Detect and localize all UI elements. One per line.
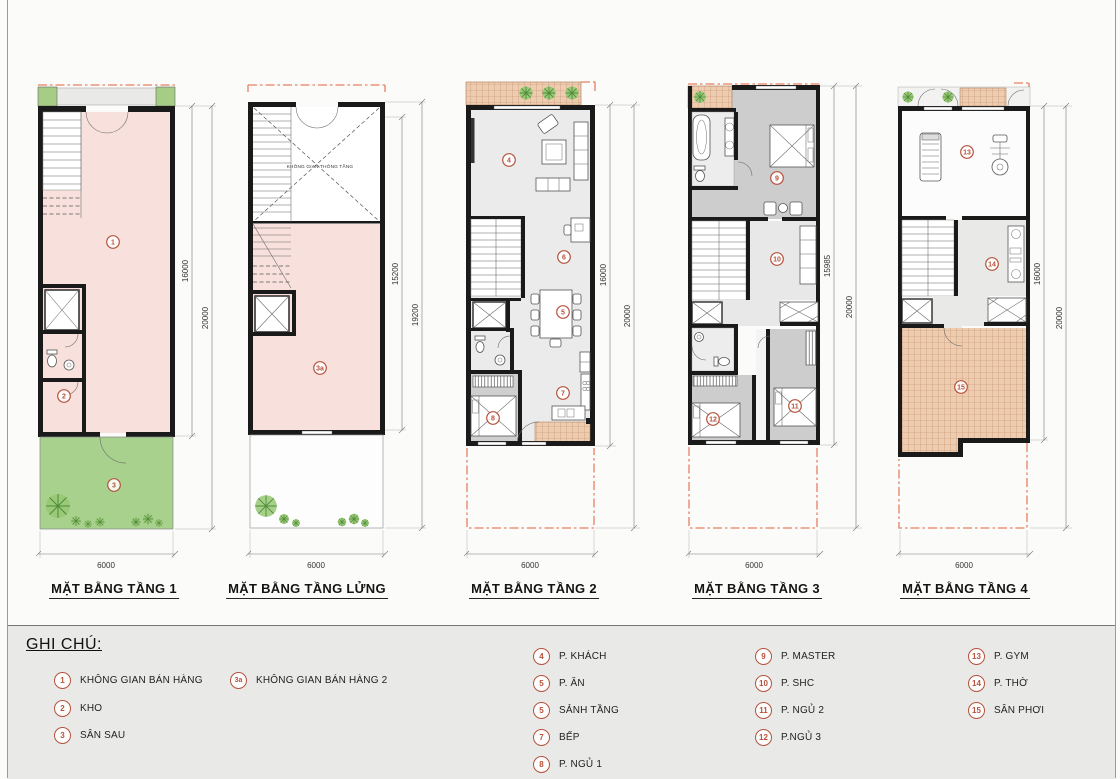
legend-label: P.NGỦ 3: [781, 732, 821, 743]
plan-title-tang-2: MẶT BẰNG TẦNG 2: [469, 581, 599, 599]
svg-text:3a: 3a: [316, 365, 324, 372]
legend-label: KHO: [80, 703, 102, 714]
elevator: [688, 300, 820, 328]
entry-porch: [43, 88, 169, 105]
dimension-label: 16000: [599, 263, 608, 286]
rear-open-area: [250, 435, 383, 528]
svg-text:7: 7: [561, 391, 565, 398]
dimension-label: 6000: [955, 561, 973, 570]
svg-text:12: 12: [709, 417, 717, 424]
window: [962, 107, 1004, 110]
plan-title-tang-lung: MẶT BẰNG TẦNG LỬNG: [226, 581, 388, 599]
boundary-dash-line: [248, 85, 385, 92]
dimension-label: 20000: [623, 304, 632, 327]
dimension-label: 20000: [201, 306, 210, 329]
room-label: 14: [986, 258, 999, 271]
legend-number-badge: 3: [54, 727, 71, 744]
dimension-label: 15200: [391, 262, 400, 285]
legend-panel: GHI CHÚ: 1 KHÔNG GIAN BÁN HÀNG 2 KHO 3 S…: [8, 625, 1115, 779]
svg-text:11: 11: [791, 404, 799, 411]
legend-label: SẢNH TẦNG: [559, 705, 619, 716]
room-label: 4: [503, 154, 516, 167]
legend-item: 5 P. ĂN: [533, 675, 585, 692]
legend-number-badge: 11: [755, 702, 772, 719]
legend-number-badge: 4: [533, 648, 550, 665]
legend-item: 14 P. THỜ: [968, 675, 1028, 692]
legend-number-badge: 12: [755, 729, 772, 746]
balcony: [466, 82, 581, 105]
stairs: [902, 220, 958, 296]
dimension-label: 15985: [823, 254, 832, 277]
window: [780, 441, 808, 444]
svg-text:KHÔNG GIAN THÔNG TẦNG: KHÔNG GIAN THÔNG TẦNG: [287, 163, 354, 169]
room-label: 2: [58, 390, 71, 403]
boundary-dash-line: [581, 82, 597, 93]
legend-item: 7 BẾP: [533, 729, 580, 746]
legend-number-badge: 3a: [230, 672, 247, 689]
footprint-dash-outline: [689, 447, 817, 528]
room-label: 12: [707, 413, 720, 426]
elevator: [253, 290, 292, 336]
window: [302, 431, 332, 434]
plan-title-tang-1: MẶT BẰNG TẦNG 1: [49, 581, 179, 599]
dimension-label: 6000: [307, 561, 325, 570]
legend-number-badge: 9: [755, 648, 772, 665]
svg-text:3: 3: [112, 483, 116, 490]
bedroom-3: [692, 375, 756, 440]
legend-item: 13 P. GYM: [968, 648, 1029, 665]
room-label: 10: [771, 253, 784, 266]
legend-number-badge: 13: [968, 648, 985, 665]
room-label: 9: [771, 172, 784, 185]
dimension-label: 6000: [745, 561, 763, 570]
legend-item: 1 KHÔNG GIAN BÁN HÀNG: [54, 672, 203, 689]
legend-label: SÂN SAU: [80, 730, 125, 741]
sofa: [800, 226, 816, 284]
corridor: [756, 329, 766, 440]
legend-label: P. SHC: [781, 678, 814, 689]
legend-item: 12 P.NGỦ 3: [755, 729, 821, 746]
window: [924, 107, 952, 110]
room-label: 11: [789, 400, 802, 413]
svg-text:2: 2: [62, 394, 66, 401]
tv-panel: [471, 118, 475, 163]
legend-label: P. THỜ: [994, 678, 1028, 689]
legend-item: 3a KHÔNG GIAN BÁN HÀNG 2: [230, 672, 387, 689]
window: [478, 442, 506, 445]
legend-item: 5 SẢNH TẦNG: [533, 702, 619, 719]
legend-number-badge: 2: [54, 700, 71, 717]
legend-item: 11 P. NGỦ 2: [755, 702, 824, 719]
stairs: [692, 221, 750, 300]
legend-label: SÂN PHƠI: [994, 705, 1044, 716]
floor-plan-tang-lung: KHÔNG GIAN THÔNG TẦNG 3a 15200 19200 600…: [246, 78, 446, 578]
legend-label: BẾP: [559, 732, 580, 743]
legend-item: 8 P. NGỦ 1: [533, 756, 602, 773]
svg-text:15: 15: [957, 385, 965, 392]
legend-label: KHÔNG GIAN BÁN HÀNG 2: [256, 675, 387, 686]
legend-label: P. NGỦ 2: [781, 705, 824, 716]
room-label: 13: [961, 146, 974, 159]
room-label: 6: [558, 251, 571, 264]
window: [756, 86, 796, 89]
window: [494, 106, 560, 109]
legend-number-badge: 1: [54, 672, 71, 689]
footprint-dash-outline: [467, 448, 594, 528]
wardrobe: [693, 376, 737, 386]
legend-number-badge: 14: [968, 675, 985, 692]
floor-plan-tang-4: 13 14 15 16000 20000 6000: [896, 78, 1096, 578]
room-label: 1: [107, 236, 120, 249]
legend-label: P. ĂN: [559, 678, 585, 689]
floor-plan-tang-3: 9 10 11 12 15985 20000 6000: [686, 78, 886, 578]
svg-text:6: 6: [562, 255, 566, 262]
legend-number-badge: 5: [533, 675, 550, 692]
legend-number-badge: 15: [968, 702, 985, 719]
wardrobe: [473, 376, 513, 387]
plan-title-tang-3: MẶT BẰNG TẦNG 3: [692, 581, 822, 599]
balcony: [688, 86, 732, 108]
balcony: [898, 87, 1030, 107]
svg-text:13: 13: [963, 150, 971, 157]
dimension-label: 6000: [97, 561, 115, 570]
dimension-label: 16000: [181, 259, 190, 282]
dimension-label: 6000: [521, 561, 539, 570]
wardrobe: [806, 331, 816, 365]
room-label: 5: [557, 306, 570, 319]
svg-text:10: 10: [773, 257, 781, 264]
garden: [40, 437, 173, 529]
room-label: 3: [108, 479, 121, 492]
elevator: [43, 284, 82, 334]
room-label: 15: [955, 381, 968, 394]
legend-label: KHÔNG GIAN BÁN HÀNG: [80, 675, 203, 686]
dimension-label: 20000: [845, 295, 854, 318]
bedroom-1: [471, 374, 522, 441]
legend-item: 15 SÂN PHƠI: [968, 702, 1044, 719]
dimension-label: 20000: [1055, 306, 1064, 329]
treadmill: [920, 133, 941, 181]
planter-box: [38, 87, 57, 106]
legend-item: 2 KHO: [54, 700, 102, 717]
stairs: [471, 216, 525, 298]
legend-label: P. MASTER: [781, 651, 835, 662]
legend-label: P. NGỦ 1: [559, 759, 602, 770]
legend-number-badge: 7: [533, 729, 550, 746]
svg-text:4: 4: [507, 158, 511, 165]
window: [706, 441, 736, 444]
window: [522, 442, 546, 445]
legend-item: 3 SÂN SAU: [54, 727, 125, 744]
svg-text:14: 14: [988, 262, 996, 269]
svg-text:8: 8: [491, 416, 495, 423]
plan-title-tang-4: MẶT BẰNG TẦNG 4: [900, 581, 1030, 599]
legend-item: 4 P. KHÁCH: [533, 648, 607, 665]
floor-plan-tang-2: 4 6 5 7 8 16000 20000 6000: [464, 78, 664, 578]
room-label: 7: [557, 387, 570, 400]
legend-number-badge: 8: [533, 756, 550, 773]
dimension-label: 19200: [411, 303, 420, 326]
svg-text:1: 1: [111, 240, 115, 247]
legend-label: P. GYM: [994, 651, 1029, 662]
planter-box: [156, 87, 175, 106]
legend-title: GHI CHÚ:: [26, 636, 102, 654]
svg-text:5: 5: [561, 310, 565, 317]
dimension-label: 16000: [1033, 262, 1042, 285]
master-bed: [770, 125, 814, 167]
elevator: [898, 296, 1030, 328]
legend-item: 10 P. SHC: [755, 675, 814, 692]
legend-item: 9 P. MASTER: [755, 648, 835, 665]
legend-number-badge: 10: [755, 675, 772, 692]
svg-text:9: 9: [775, 176, 779, 183]
legend-number-badge: 5: [533, 702, 550, 719]
legend-label: P. KHÁCH: [559, 651, 607, 662]
floor-plan-tang-1: 1 2 3 16000 20000 6000: [36, 78, 236, 578]
room-label: 3a: [314, 362, 327, 375]
toilet-room: [688, 328, 738, 375]
room-label: 8: [487, 412, 500, 425]
sheet-border-right: [1115, 0, 1116, 778]
